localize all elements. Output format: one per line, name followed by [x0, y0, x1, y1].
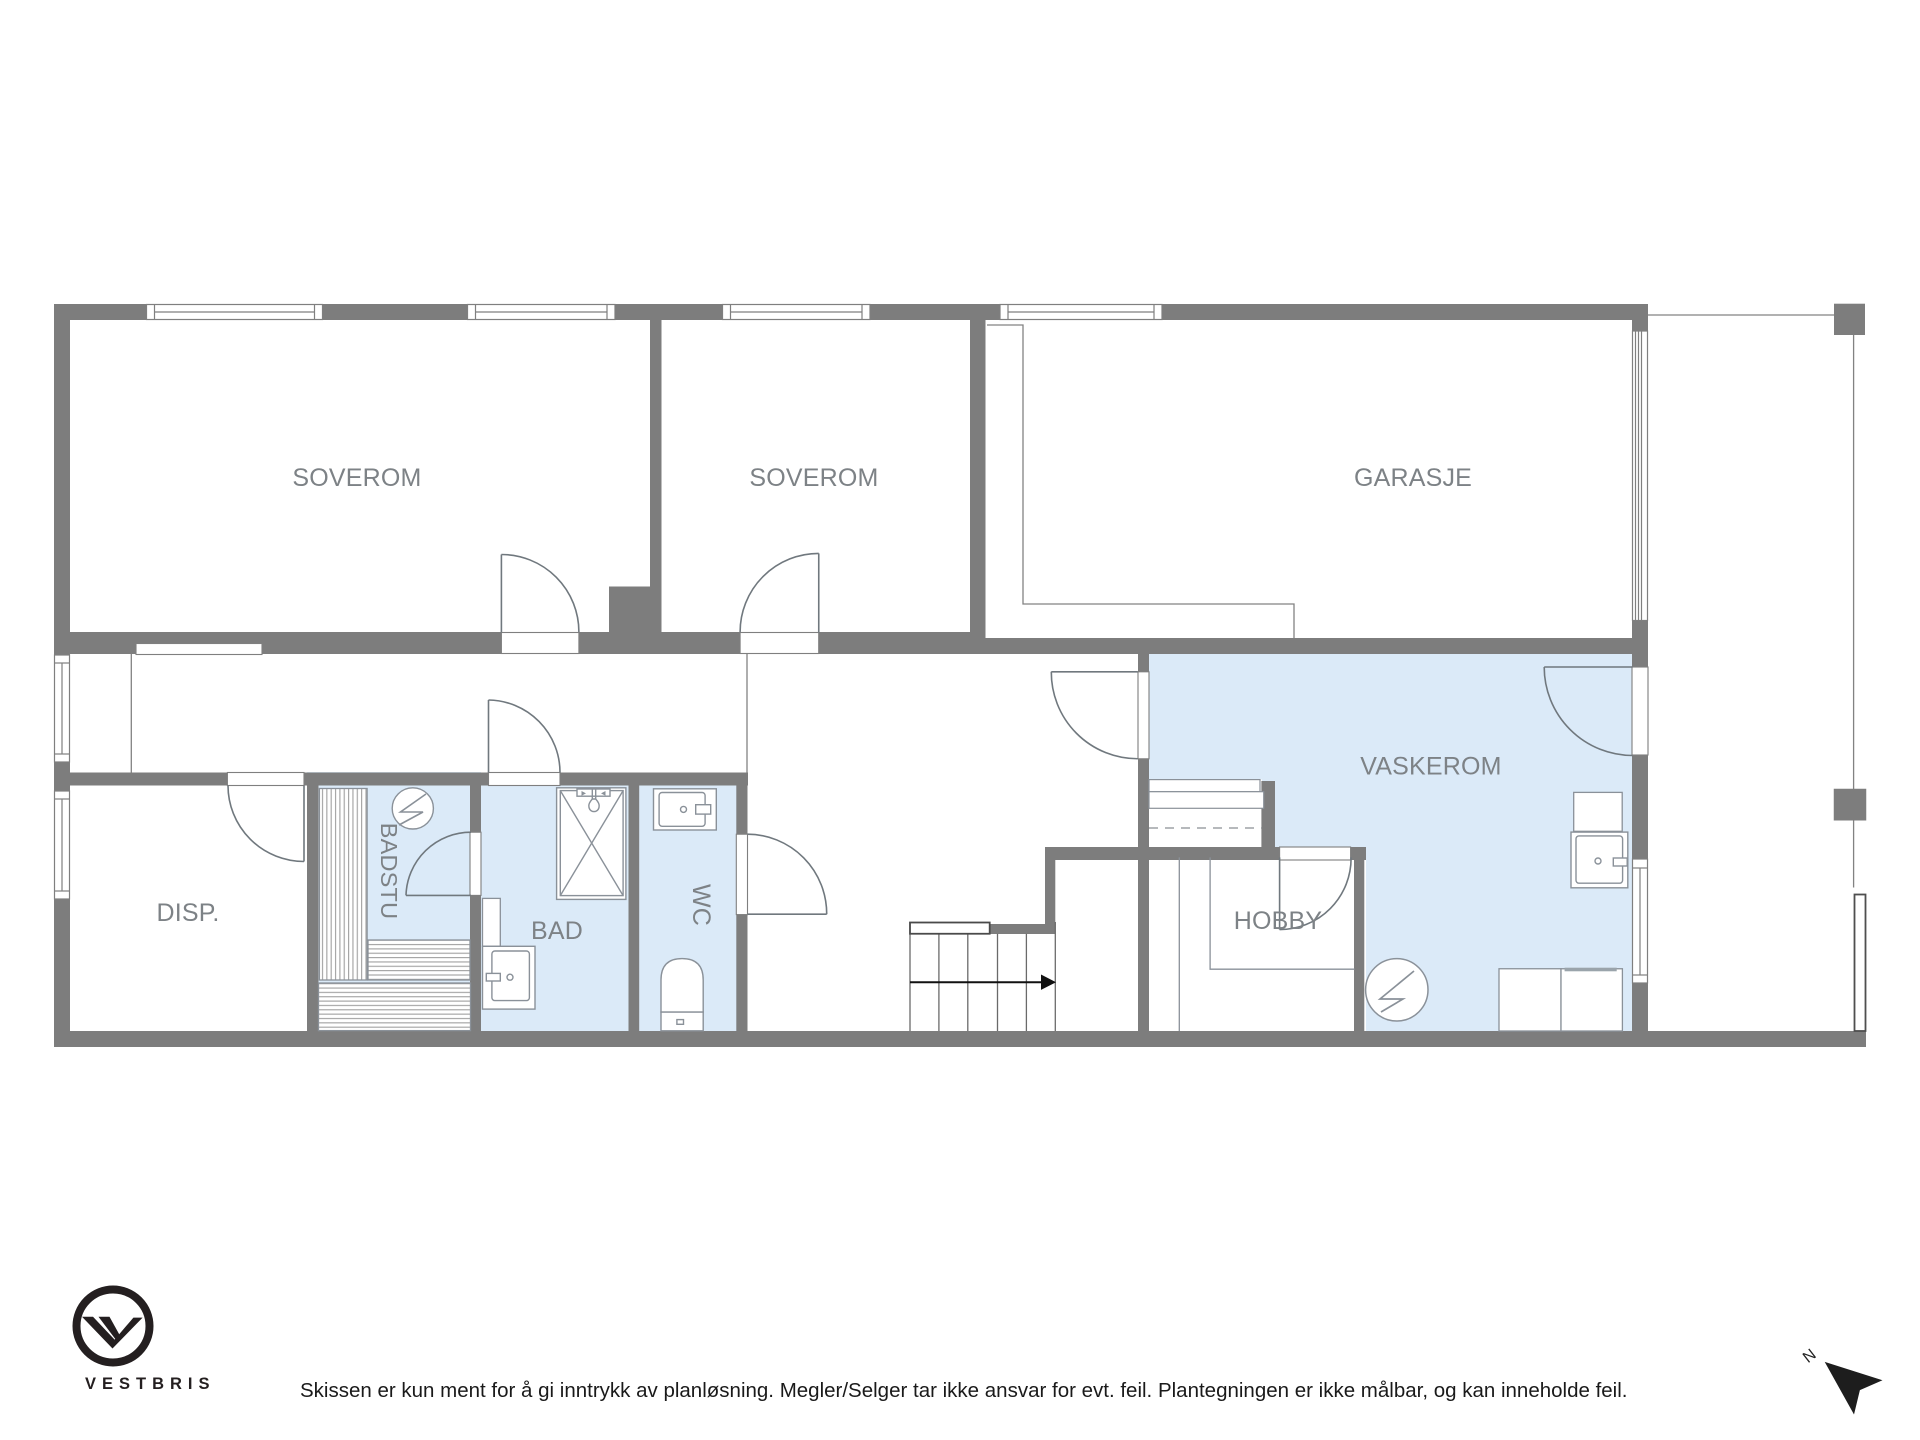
- svg-text:BAD: BAD: [531, 917, 583, 945]
- svg-text:VASKEROM: VASKEROM: [1360, 753, 1501, 781]
- svg-text:Skissen er kun ment for å gi i: Skissen er kun ment for å gi inntrykk av…: [300, 1379, 1628, 1402]
- svg-text:SOVEROM: SOVEROM: [749, 464, 878, 492]
- svg-text:VESTBRIS: VESTBRIS: [85, 1375, 216, 1393]
- svg-text:HOBBY: HOBBY: [1234, 907, 1323, 935]
- svg-text:BADSTU: BADSTU: [376, 823, 402, 920]
- svg-text:GARASJE: GARASJE: [1354, 464, 1472, 492]
- svg-text:WC: WC: [687, 884, 715, 926]
- svg-text:DISP.: DISP.: [156, 899, 219, 927]
- svg-text:SOVEROM: SOVEROM: [292, 464, 421, 492]
